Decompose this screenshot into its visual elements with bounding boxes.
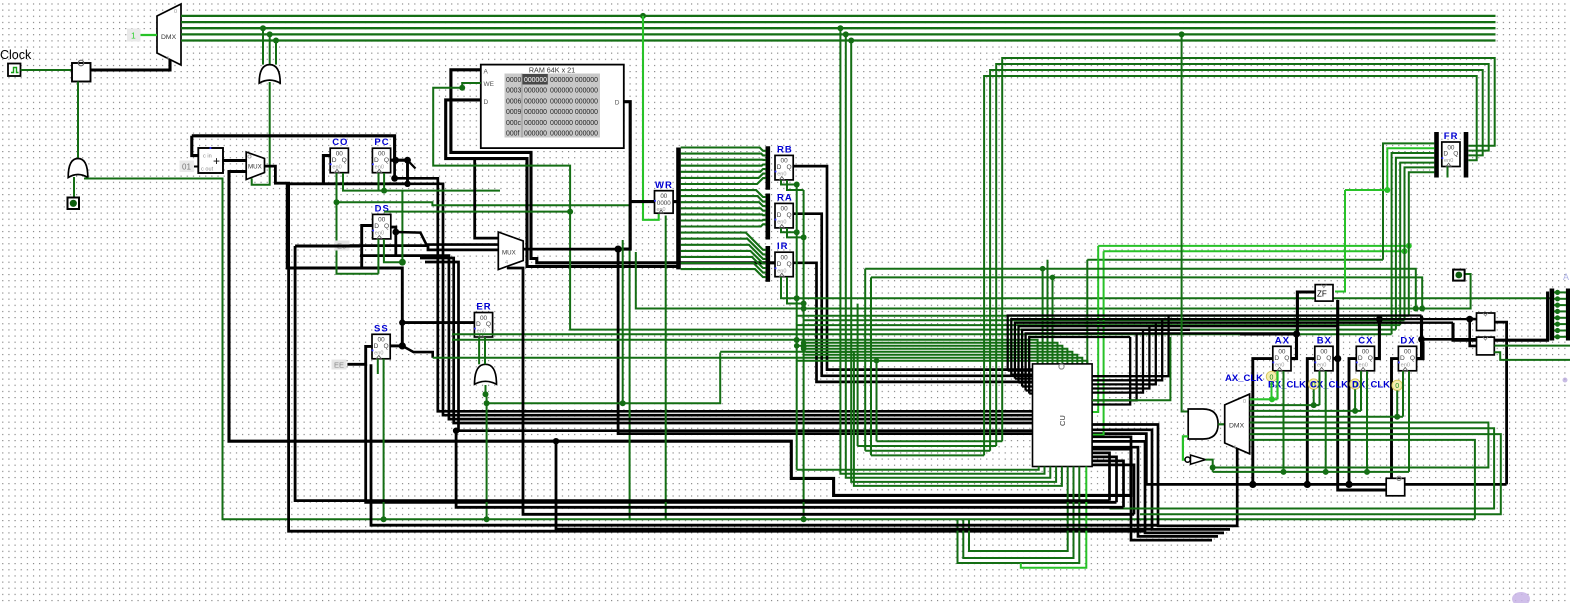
svg-text:0009: 0009	[506, 109, 521, 116]
svg-text:000000 000000: 000000 000000	[550, 120, 598, 127]
svg-text:000000: 000000	[524, 109, 547, 116]
svg-text:BX_CLK: BX_CLK	[1268, 380, 1306, 391]
svg-text:Q: Q	[1410, 355, 1415, 362]
svg-text:MUX: MUX	[248, 164, 262, 171]
svg-text:Q: Q	[786, 212, 791, 219]
svg-text:CU: CU	[1058, 415, 1067, 426]
svg-text:CO: CO	[332, 137, 348, 148]
svg-text:000000: 000000	[524, 98, 547, 105]
svg-text:D: D	[1443, 151, 1448, 158]
svg-text:RA: RA	[777, 192, 793, 203]
svg-text:MUX: MUX	[502, 250, 516, 257]
svg-text:ZF: ZF	[1317, 290, 1327, 299]
svg-text:Q: Q	[342, 157, 347, 164]
svg-text:BX: BX	[1317, 335, 1332, 346]
svg-text:D: D	[374, 343, 379, 350]
svg-text:Q: Q	[384, 223, 389, 230]
svg-text:Q: Q	[384, 157, 389, 164]
svg-text:000000 000000: 000000 000000	[550, 98, 598, 105]
svg-text:D: D	[1316, 355, 1321, 362]
svg-text:D: D	[332, 157, 337, 164]
svg-text:Q: Q	[786, 164, 791, 171]
svg-text:000000: 000000	[524, 131, 547, 138]
svg-text:000000 000000: 000000 000000	[550, 77, 598, 84]
svg-text:D: D	[615, 100, 620, 107]
svg-text:ER: ER	[476, 302, 491, 313]
svg-text:1: 1	[131, 31, 136, 41]
svg-text:A: A	[1563, 272, 1569, 282]
svg-text:00: 00	[660, 193, 667, 200]
svg-text:DX_CLK: DX_CLK	[1352, 380, 1390, 391]
svg-text:000000 000000: 000000 000000	[550, 131, 598, 138]
svg-text:Q: Q	[1326, 355, 1331, 362]
svg-text:D: D	[374, 157, 379, 164]
svg-text:0: 0	[1243, 399, 1246, 405]
svg-text:000000 000000: 000000 000000	[550, 109, 598, 116]
svg-text:RAM 64K x 21: RAM 64K x 21	[529, 66, 575, 75]
svg-text:0006: 0006	[506, 98, 521, 105]
svg-text:D: D	[777, 164, 782, 171]
svg-text:FR: FR	[1444, 131, 1459, 142]
svg-text:WR: WR	[655, 180, 673, 191]
svg-text:4: 4	[166, 56, 169, 62]
svg-text:D: D	[777, 261, 782, 268]
svg-text:D: D	[484, 99, 489, 106]
svg-text:CX_CLK: CX_CLK	[1310, 380, 1348, 391]
svg-text:DMX: DMX	[161, 34, 177, 41]
svg-text:01: 01	[182, 163, 191, 172]
svg-text:D: D	[1358, 355, 1363, 362]
svg-text:A: A	[484, 69, 489, 76]
svg-text:D: D	[1400, 355, 1405, 362]
svg-text:CX: CX	[1358, 335, 1373, 346]
svg-text:DMX: DMX	[1229, 423, 1245, 430]
svg-text:Q: Q	[1368, 355, 1373, 362]
svg-text:RB: RB	[777, 144, 793, 155]
svg-text:000c: 000c	[506, 120, 521, 127]
svg-text:+: +	[213, 154, 220, 168]
svg-text:D: D	[476, 321, 481, 328]
svg-text:AX: AX	[1275, 335, 1290, 346]
svg-text:WE: WE	[484, 81, 495, 88]
svg-text:4: 4	[505, 260, 508, 266]
svg-text:c out: c out	[201, 167, 214, 173]
svg-text:000000 000000: 000000 000000	[550, 88, 598, 95]
svg-text:Clock: Clock	[0, 48, 32, 62]
svg-text:0003: 0003	[506, 88, 521, 95]
svg-text:000f: 000f	[506, 131, 519, 138]
svg-text:c in: c in	[203, 154, 212, 160]
svg-text:000000: 000000	[524, 88, 547, 95]
svg-text:000000: 000000	[524, 120, 547, 127]
svg-text:Q: Q	[383, 343, 388, 350]
svg-text:DX: DX	[1400, 335, 1415, 346]
svg-text:DS: DS	[375, 203, 390, 214]
svg-text:D: D	[1274, 355, 1279, 362]
svg-text:D: D	[777, 212, 782, 219]
svg-text:PC: PC	[374, 137, 389, 148]
svg-text:SS: SS	[374, 323, 389, 334]
svg-text:AX_CLK: AX_CLK	[1225, 373, 1263, 384]
svg-text:Q: Q	[1284, 355, 1289, 362]
svg-text:0: 0	[1395, 383, 1399, 390]
svg-text:0000: 0000	[506, 77, 521, 84]
svg-text:Q: Q	[786, 261, 791, 268]
svg-text:D: D	[374, 223, 379, 230]
svg-text:4: 4	[1233, 445, 1236, 451]
svg-text:0: 0	[174, 9, 177, 15]
svg-text:EE: EE	[334, 361, 344, 370]
svg-text:Q: Q	[486, 321, 491, 328]
svg-text:000000: 000000	[524, 77, 547, 84]
svg-text:0000: 0000	[657, 200, 671, 207]
svg-text:Q: Q	[1453, 151, 1458, 158]
svg-text:IR: IR	[777, 241, 789, 252]
